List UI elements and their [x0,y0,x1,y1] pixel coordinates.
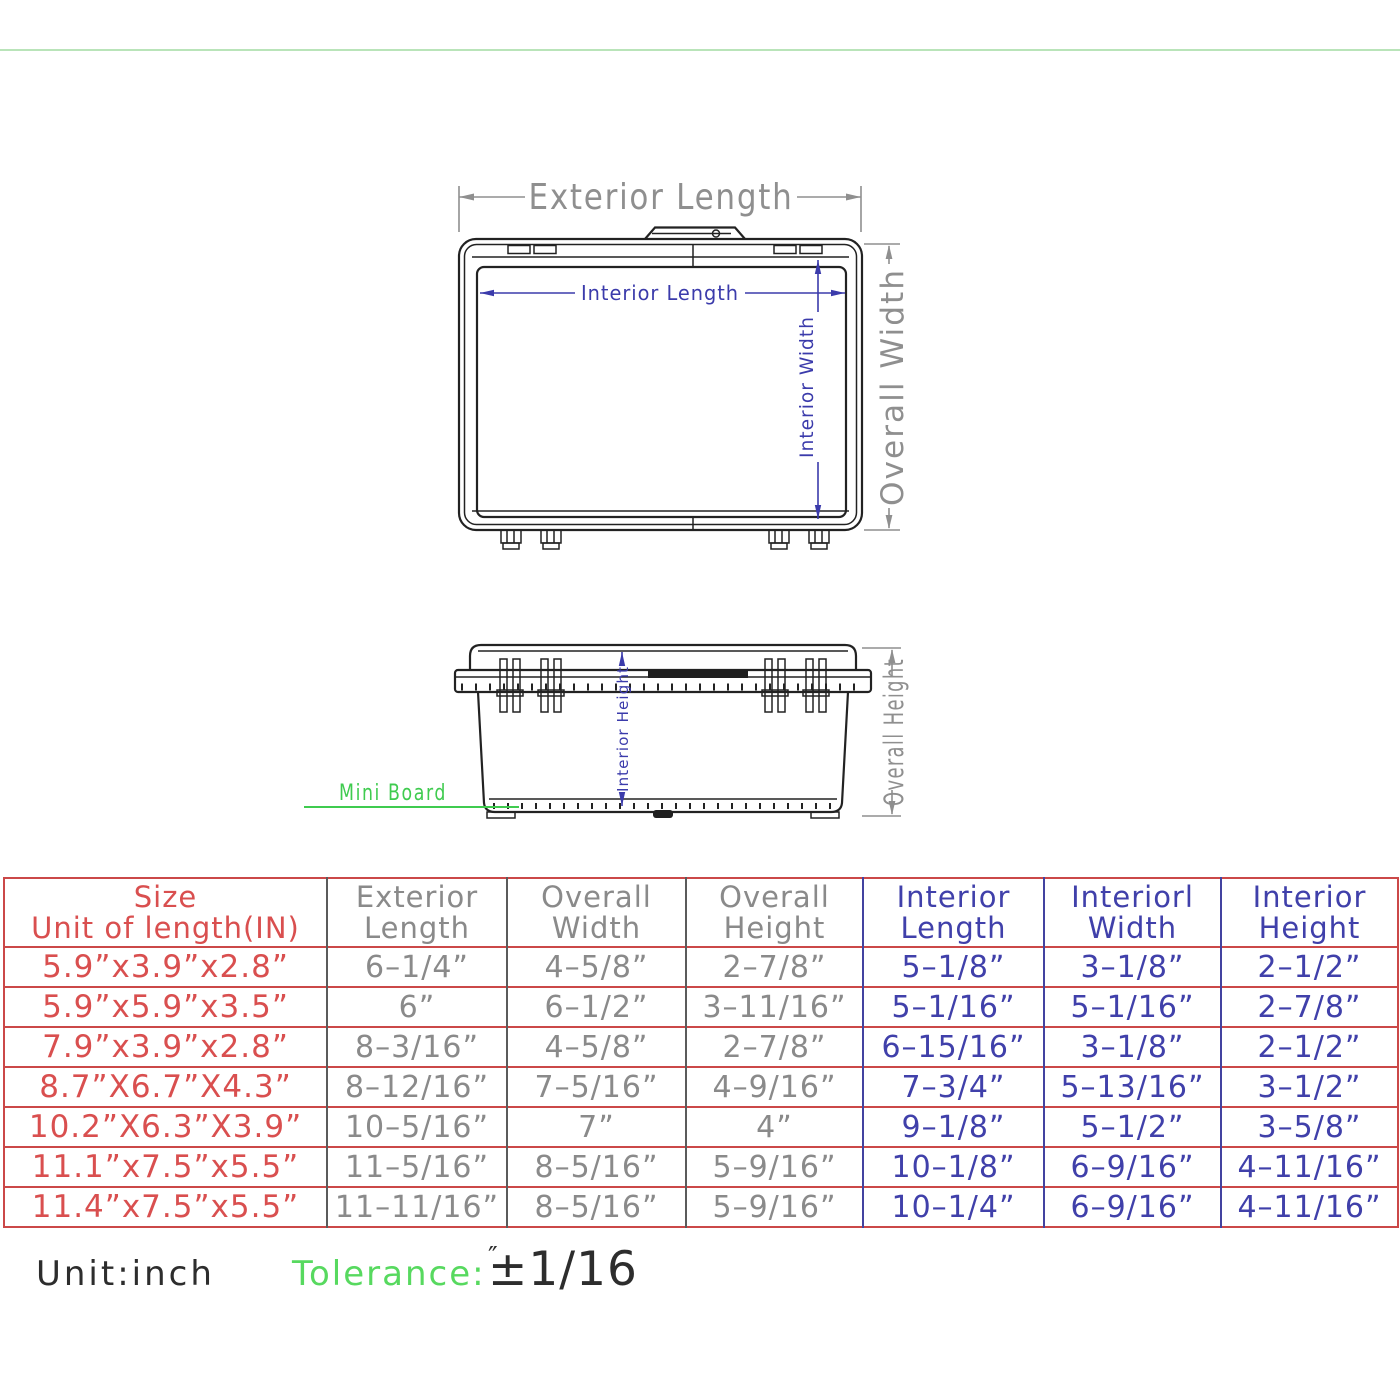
top-view-handle [645,228,745,240]
interior-width-dimension: Interior Width [796,260,821,519]
table-cell: 5–9/16” [686,1187,863,1227]
drawing-sheet: Exterior Length Interior Length Interior… [0,0,1400,1400]
table-cell: 8–12/16” [327,1067,507,1107]
table-cell: 3–1/8” [1044,1027,1221,1067]
table-cell: 5.9”x5.9”x3.5” [4,987,327,1027]
table-cell: 5–1/8” [863,947,1044,987]
mini-board-callout: Mini Board [304,781,519,807]
bottom-plug [653,810,673,818]
table-cell: 10–5/16” [327,1107,507,1147]
side-view-flange [455,670,871,692]
table-cell: 7–3/4” [863,1067,1044,1107]
side-view-lid [470,645,856,670]
header-ih-line2: Height [1222,913,1397,944]
table-cell: 2–7/8” [686,1027,863,1067]
table-cell: 10–1/4” [863,1187,1044,1227]
top-view-hinge-tabs [501,530,829,549]
interior-height-label: Interior Height [614,666,632,792]
table-row: 5.9”x5.9”x3.5”6”6–1/2”3–11/16”5–1/16”5–1… [4,987,1398,1027]
tolerance-value: ±1/16″ [488,1242,499,1297]
interior-length-label: Interior Length [581,281,739,305]
table-cell: 5.9”x3.9”x2.8” [4,947,327,987]
table-cell: 10.2”X6.3”X3.9” [4,1107,327,1147]
tolerance-label: Tolerance: [292,1254,486,1294]
table-cell: 2–7/8” [686,947,863,987]
header-oh-line1: Overall [687,882,862,913]
table-cell: 5–1/16” [863,987,1044,1027]
header-il-line2: Length [864,913,1043,944]
interior-length-dimension: Interior Length [480,281,845,305]
table-cell: 3–5/8” [1221,1107,1398,1147]
table-cell: 11–11/16” [327,1187,507,1227]
table-cell: 5–13/16” [1044,1067,1221,1107]
size-table: Size Unit of length(IN) Exterior Length … [3,877,1399,1228]
table-cell: 4–9/16” [686,1067,863,1107]
top-view-rim-slots [508,246,822,254]
table-cell: 6–9/16” [1044,1187,1221,1227]
table-cell: 5–1/2” [1044,1107,1221,1147]
table-cell: 7.9”x3.9”x2.8” [4,1027,327,1067]
header-exterior-length: Exterior Length [327,878,507,947]
side-view-body [478,692,848,818]
overall-height-dimension: Overall Height [862,648,910,816]
header-iw-line1: Interiorl [1045,882,1220,913]
table-cell: 6–9/16” [1044,1147,1221,1187]
header-interior-length: Interior Length [863,878,1044,947]
table-cell: 11.4”x7.5”x5.5” [4,1187,327,1227]
table-cell: 8–5/16” [507,1147,686,1187]
tolerance-unit-mark: ″ [488,1242,499,1272]
table-cell: 6–1/4” [327,947,507,987]
header-el-line2: Length [328,913,506,944]
table-cell: 4–11/16” [1221,1147,1398,1187]
table-cell: 7–5/16” [507,1067,686,1107]
table-cell: 4–5/8” [507,947,686,987]
table-cell: 9–1/8” [863,1107,1044,1147]
technical-drawing: Exterior Length Interior Length Interior… [0,0,1400,877]
header-row: Size Unit of length(IN) Exterior Length … [4,878,1398,947]
header-interior-height: Interior Height [1221,878,1398,947]
interior-width-label: Interior Width [796,316,818,458]
table-cell: 10–1/8” [863,1147,1044,1187]
exterior-length-dimension: Exterior Length [459,177,861,232]
header-size-line2: Unit of length(IN) [5,913,326,944]
table-row: 10.2”X6.3”X3.9”10–5/16”7”4”9–1/8”5–1/2”3… [4,1107,1398,1147]
table-row: 11.4”x7.5”x5.5”11–11/16”8–5/16”5–9/16”10… [4,1187,1398,1227]
overall-height-label: Overall Height [879,658,910,806]
header-ow-line2: Width [508,913,685,944]
overall-width-label: Overall Width [875,268,911,506]
table-cell: 11.1”x7.5”x5.5” [4,1147,327,1187]
table-cell: 6” [327,987,507,1027]
header-interior-width: Interiorl Width [1044,878,1221,947]
tolerance-number: ±1/16 [488,1242,638,1297]
table-row: 11.1”x7.5”x5.5”11–5/16”8–5/16”5–9/16”10–… [4,1147,1398,1187]
table-cell: 3–11/16” [686,987,863,1027]
table-cell: 4” [686,1107,863,1147]
size-table-header: Size Unit of length(IN) Exterior Length … [4,878,1398,947]
table-cell: 2–7/8” [1221,987,1398,1027]
table-cell: 4–5/8” [507,1027,686,1067]
top-view: Exterior Length Interior Length Interior… [459,177,911,549]
lid-recess [648,670,748,678]
table-row: 7.9”x3.9”x2.8”8–3/16”4–5/8”2–7/8”6–15/16… [4,1027,1398,1067]
header-iw-line2: Width [1045,913,1220,944]
table-cell: 5–1/16” [1044,987,1221,1027]
table-cell: 6–15/16” [863,1027,1044,1067]
mini-board-label: Mini Board [339,781,447,806]
table-cell: 2–1/2” [1221,947,1398,987]
table-cell: 3–1/8” [1044,947,1221,987]
header-overall-height: Overall Height [686,878,863,947]
exterior-length-label: Exterior Length [529,177,794,218]
footer: Unit:inch Tolerance: ±1/16″ [0,1248,1400,1328]
header-ow-line1: Overall [508,882,685,913]
header-overall-width: Overall Width [507,878,686,947]
table-cell: 6–1/2” [507,987,686,1027]
header-size-line1: Size [5,882,326,913]
size-table-body: 5.9”x3.9”x2.8”6–1/4”4–5/8”2–7/8”5–1/8”3–… [4,947,1398,1227]
side-view: Interior Height Overall Height Mini Boar… [304,645,910,818]
header-size: Size Unit of length(IN) [4,878,327,947]
table-cell: 2–1/2” [1221,1027,1398,1067]
table-row: 5.9”x3.9”x2.8”6–1/4”4–5/8”2–7/8”5–1/8”3–… [4,947,1398,987]
table-cell: 3–1/2” [1221,1067,1398,1107]
table-cell: 11–5/16” [327,1147,507,1187]
table-cell: 8–3/16” [327,1027,507,1067]
table-cell: 4–11/16” [1221,1187,1398,1227]
table-cell: 7” [507,1107,686,1147]
header-el-line1: Exterior [328,882,506,913]
header-ih-line1: Interior [1222,882,1397,913]
unit-label: Unit:inch [36,1254,215,1294]
header-oh-line2: Height [687,913,862,944]
table-cell: 5–9/16” [686,1147,863,1187]
overall-width-dimension: Overall Width [864,244,911,530]
table-cell: 8–5/16” [507,1187,686,1227]
table-cell: 8.7”X6.7”X4.3” [4,1067,327,1107]
header-il-line1: Interior [864,882,1043,913]
table-row: 8.7”X6.7”X4.3”8–12/16”7–5/16”4–9/16”7–3/… [4,1067,1398,1107]
interior-height-dimension: Interior Height [614,652,632,806]
